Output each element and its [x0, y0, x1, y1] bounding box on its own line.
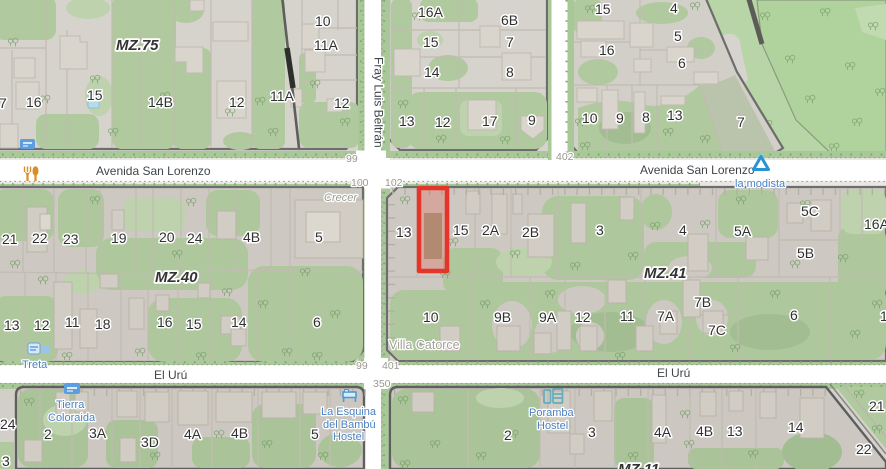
svg-text:7C: 7C: [708, 322, 726, 338]
svg-text:6: 6: [313, 314, 321, 330]
svg-text:15: 15: [186, 316, 202, 332]
svg-text:Tierra: Tierra: [56, 399, 85, 411]
svg-text:19: 19: [111, 230, 127, 246]
svg-text:11: 11: [620, 308, 635, 324]
svg-text:14B: 14B: [148, 94, 173, 110]
svg-text:El Urú: El Urú: [657, 366, 690, 380]
svg-text:9A: 9A: [539, 309, 557, 325]
svg-text:5: 5: [311, 426, 319, 442]
svg-text:MZ.41: MZ.41: [644, 265, 687, 282]
svg-text:5B: 5B: [797, 245, 814, 261]
svg-text:16A: 16A: [864, 216, 886, 232]
svg-text:15: 15: [453, 222, 469, 238]
svg-text:Treta: Treta: [22, 359, 48, 371]
svg-text:21: 21: [2, 231, 18, 247]
svg-text:23: 23: [63, 231, 79, 247]
svg-text:102: 102: [385, 177, 403, 189]
svg-text:4B: 4B: [243, 229, 260, 245]
svg-text:15: 15: [595, 1, 611, 17]
svg-text:Fray Luis Beltrán: Fray Luis Beltrán: [372, 57, 386, 148]
svg-text:MZ.75: MZ.75: [116, 37, 159, 54]
svg-text:La Esquina: La Esquina: [321, 406, 377, 418]
svg-text:402: 402: [556, 151, 574, 163]
svg-text:1: 1: [880, 308, 886, 324]
svg-text:12: 12: [334, 95, 350, 111]
svg-text:4B: 4B: [231, 425, 248, 441]
svg-text:13: 13: [4, 317, 20, 333]
svg-text:12: 12: [229, 94, 245, 110]
svg-text:16: 16: [26, 94, 42, 110]
svg-text:Villa Catorce: Villa Catorce: [389, 338, 460, 352]
svg-text:Hostel: Hostel: [333, 431, 364, 443]
svg-text:7: 7: [0, 95, 7, 111]
svg-text:14: 14: [231, 314, 247, 330]
svg-text:Hostel: Hostel: [537, 420, 568, 432]
svg-text:MZ.40: MZ.40: [155, 269, 198, 286]
svg-text:16A: 16A: [418, 4, 444, 20]
svg-text:16: 16: [599, 42, 615, 58]
svg-text:5: 5: [674, 28, 682, 44]
svg-text:401: 401: [382, 360, 400, 372]
svg-text:14: 14: [788, 419, 804, 435]
svg-text:15: 15: [87, 87, 103, 103]
svg-text:Avenida San Lorenzo: Avenida San Lorenzo: [640, 163, 755, 177]
svg-text:17: 17: [482, 113, 498, 129]
svg-text:13: 13: [396, 224, 412, 240]
svg-text:4: 4: [679, 222, 687, 238]
svg-text:2: 2: [44, 426, 52, 442]
svg-text:21: 21: [869, 398, 885, 414]
svg-text:4A: 4A: [184, 426, 202, 442]
svg-text:El Urú: El Urú: [154, 368, 187, 382]
svg-text:2B: 2B: [522, 224, 539, 240]
svg-text:2A: 2A: [482, 222, 500, 238]
svg-text:3: 3: [2, 453, 10, 469]
svg-text:350: 350: [373, 378, 391, 390]
svg-text:11A: 11A: [314, 37, 339, 53]
svg-text:3D: 3D: [141, 434, 159, 450]
svg-text:3A: 3A: [89, 425, 107, 441]
svg-text:MZ.11: MZ.11: [618, 461, 659, 469]
svg-text:22: 22: [32, 230, 48, 246]
svg-text:9: 9: [528, 112, 536, 128]
svg-text:3: 3: [588, 424, 596, 440]
svg-text:Coloraida: Coloraida: [48, 412, 96, 424]
svg-text:4B: 4B: [696, 423, 713, 439]
svg-text:10: 10: [423, 309, 439, 325]
svg-text:5C: 5C: [801, 203, 819, 219]
svg-text:15: 15: [423, 34, 439, 50]
svg-text:8: 8: [506, 64, 514, 80]
svg-text:22: 22: [856, 441, 872, 457]
svg-text:4A: 4A: [654, 424, 672, 440]
svg-text:11: 11: [65, 314, 80, 330]
svg-text:10: 10: [315, 13, 331, 29]
svg-text:8: 8: [642, 109, 650, 125]
svg-text:16: 16: [157, 314, 173, 330]
svg-text:Crecer: Crecer: [324, 192, 358, 204]
svg-text:99: 99: [346, 153, 358, 165]
svg-text:12: 12: [575, 309, 591, 325]
svg-text:99: 99: [356, 360, 368, 372]
svg-text:6: 6: [790, 307, 798, 323]
svg-text:del Bambú: del Bambú: [323, 419, 376, 431]
svg-text:13: 13: [399, 113, 415, 129]
svg-text:la modista: la modista: [735, 178, 786, 190]
svg-text:9: 9: [616, 110, 624, 126]
svg-text:3: 3: [596, 222, 604, 238]
svg-text:Poramba: Poramba: [529, 407, 575, 419]
svg-text:24: 24: [187, 230, 203, 246]
svg-text:100: 100: [351, 177, 369, 189]
svg-text:6: 6: [678, 55, 686, 71]
svg-text:13: 13: [727, 423, 743, 439]
svg-text:18: 18: [95, 316, 111, 332]
svg-text:24: 24: [0, 416, 16, 432]
svg-text:7A: 7A: [657, 308, 675, 324]
svg-text:9B: 9B: [494, 309, 511, 325]
svg-text:4: 4: [670, 0, 678, 16]
svg-text:6B: 6B: [501, 12, 518, 28]
svg-text:12: 12: [34, 317, 50, 333]
svg-text:11A: 11A: [270, 88, 295, 104]
svg-text:7: 7: [506, 34, 514, 50]
svg-text:Avenida San Lorenzo: Avenida San Lorenzo: [96, 164, 211, 178]
svg-text:2: 2: [504, 427, 512, 443]
svg-text:12: 12: [435, 114, 451, 130]
svg-text:7: 7: [737, 114, 745, 130]
svg-text:20: 20: [159, 229, 175, 245]
svg-text:7B: 7B: [694, 294, 711, 310]
svg-text:5: 5: [315, 229, 323, 245]
svg-text:13: 13: [667, 107, 683, 123]
svg-text:14: 14: [424, 64, 440, 80]
svg-text:5A: 5A: [734, 223, 752, 239]
svg-text:10: 10: [582, 110, 598, 126]
